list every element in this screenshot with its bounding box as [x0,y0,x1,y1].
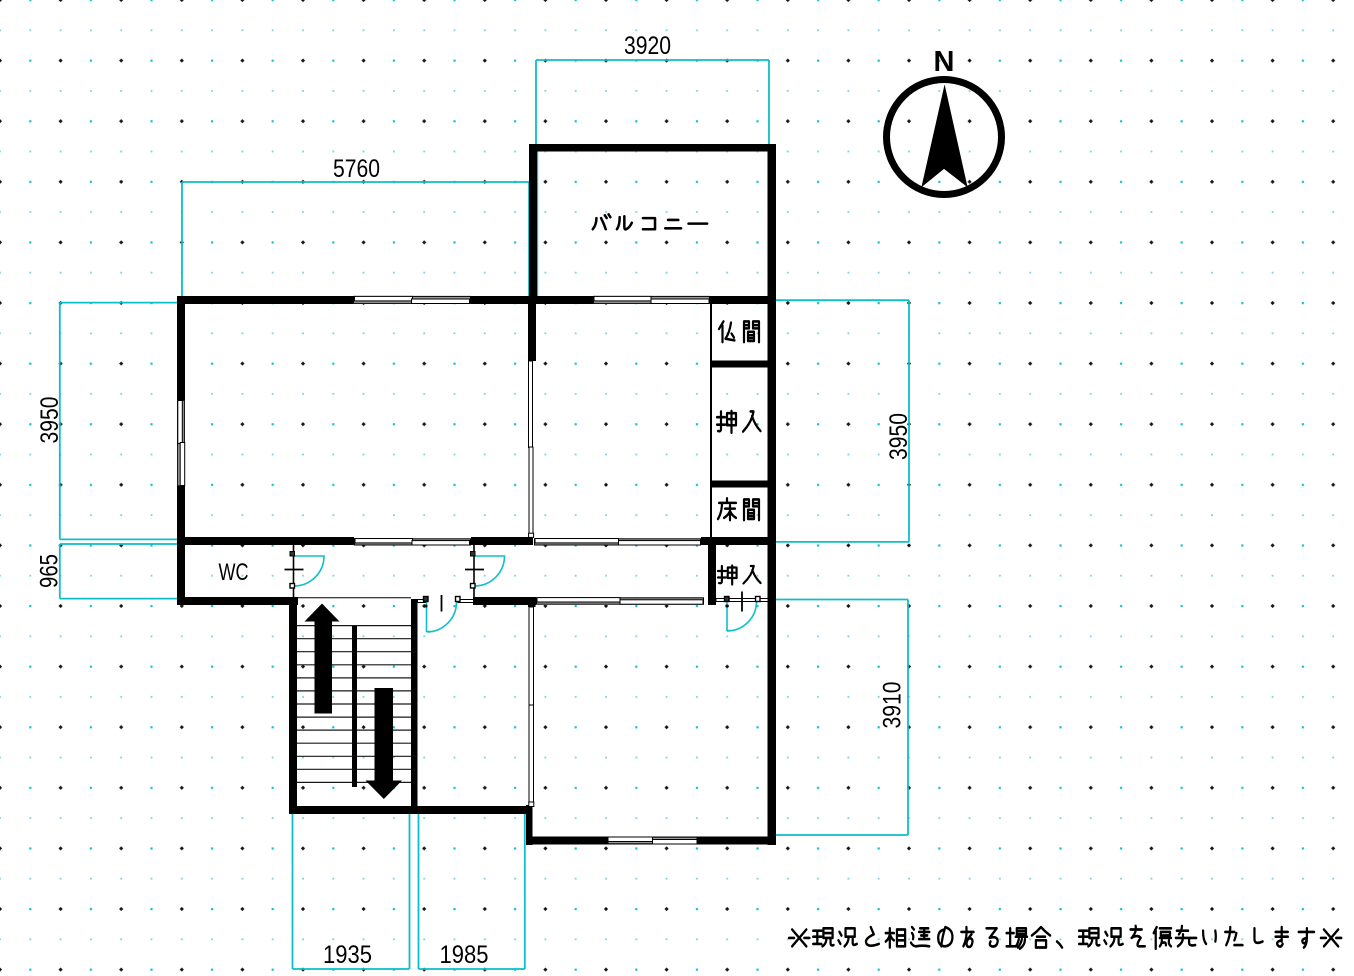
svg-text:WC: WC [219,559,249,586]
svg-text:3910: 3910 [879,682,907,729]
svg-text:1985: 1985 [440,941,489,969]
svg-text:3950: 3950 [36,397,64,444]
svg-text:3950: 3950 [885,413,913,460]
svg-text:N: N [934,46,955,78]
svg-text:5760: 5760 [333,155,380,183]
svg-text:3920: 3920 [624,32,671,60]
svg-text:965: 965 [36,554,64,588]
svg-text:1935: 1935 [323,941,372,969]
